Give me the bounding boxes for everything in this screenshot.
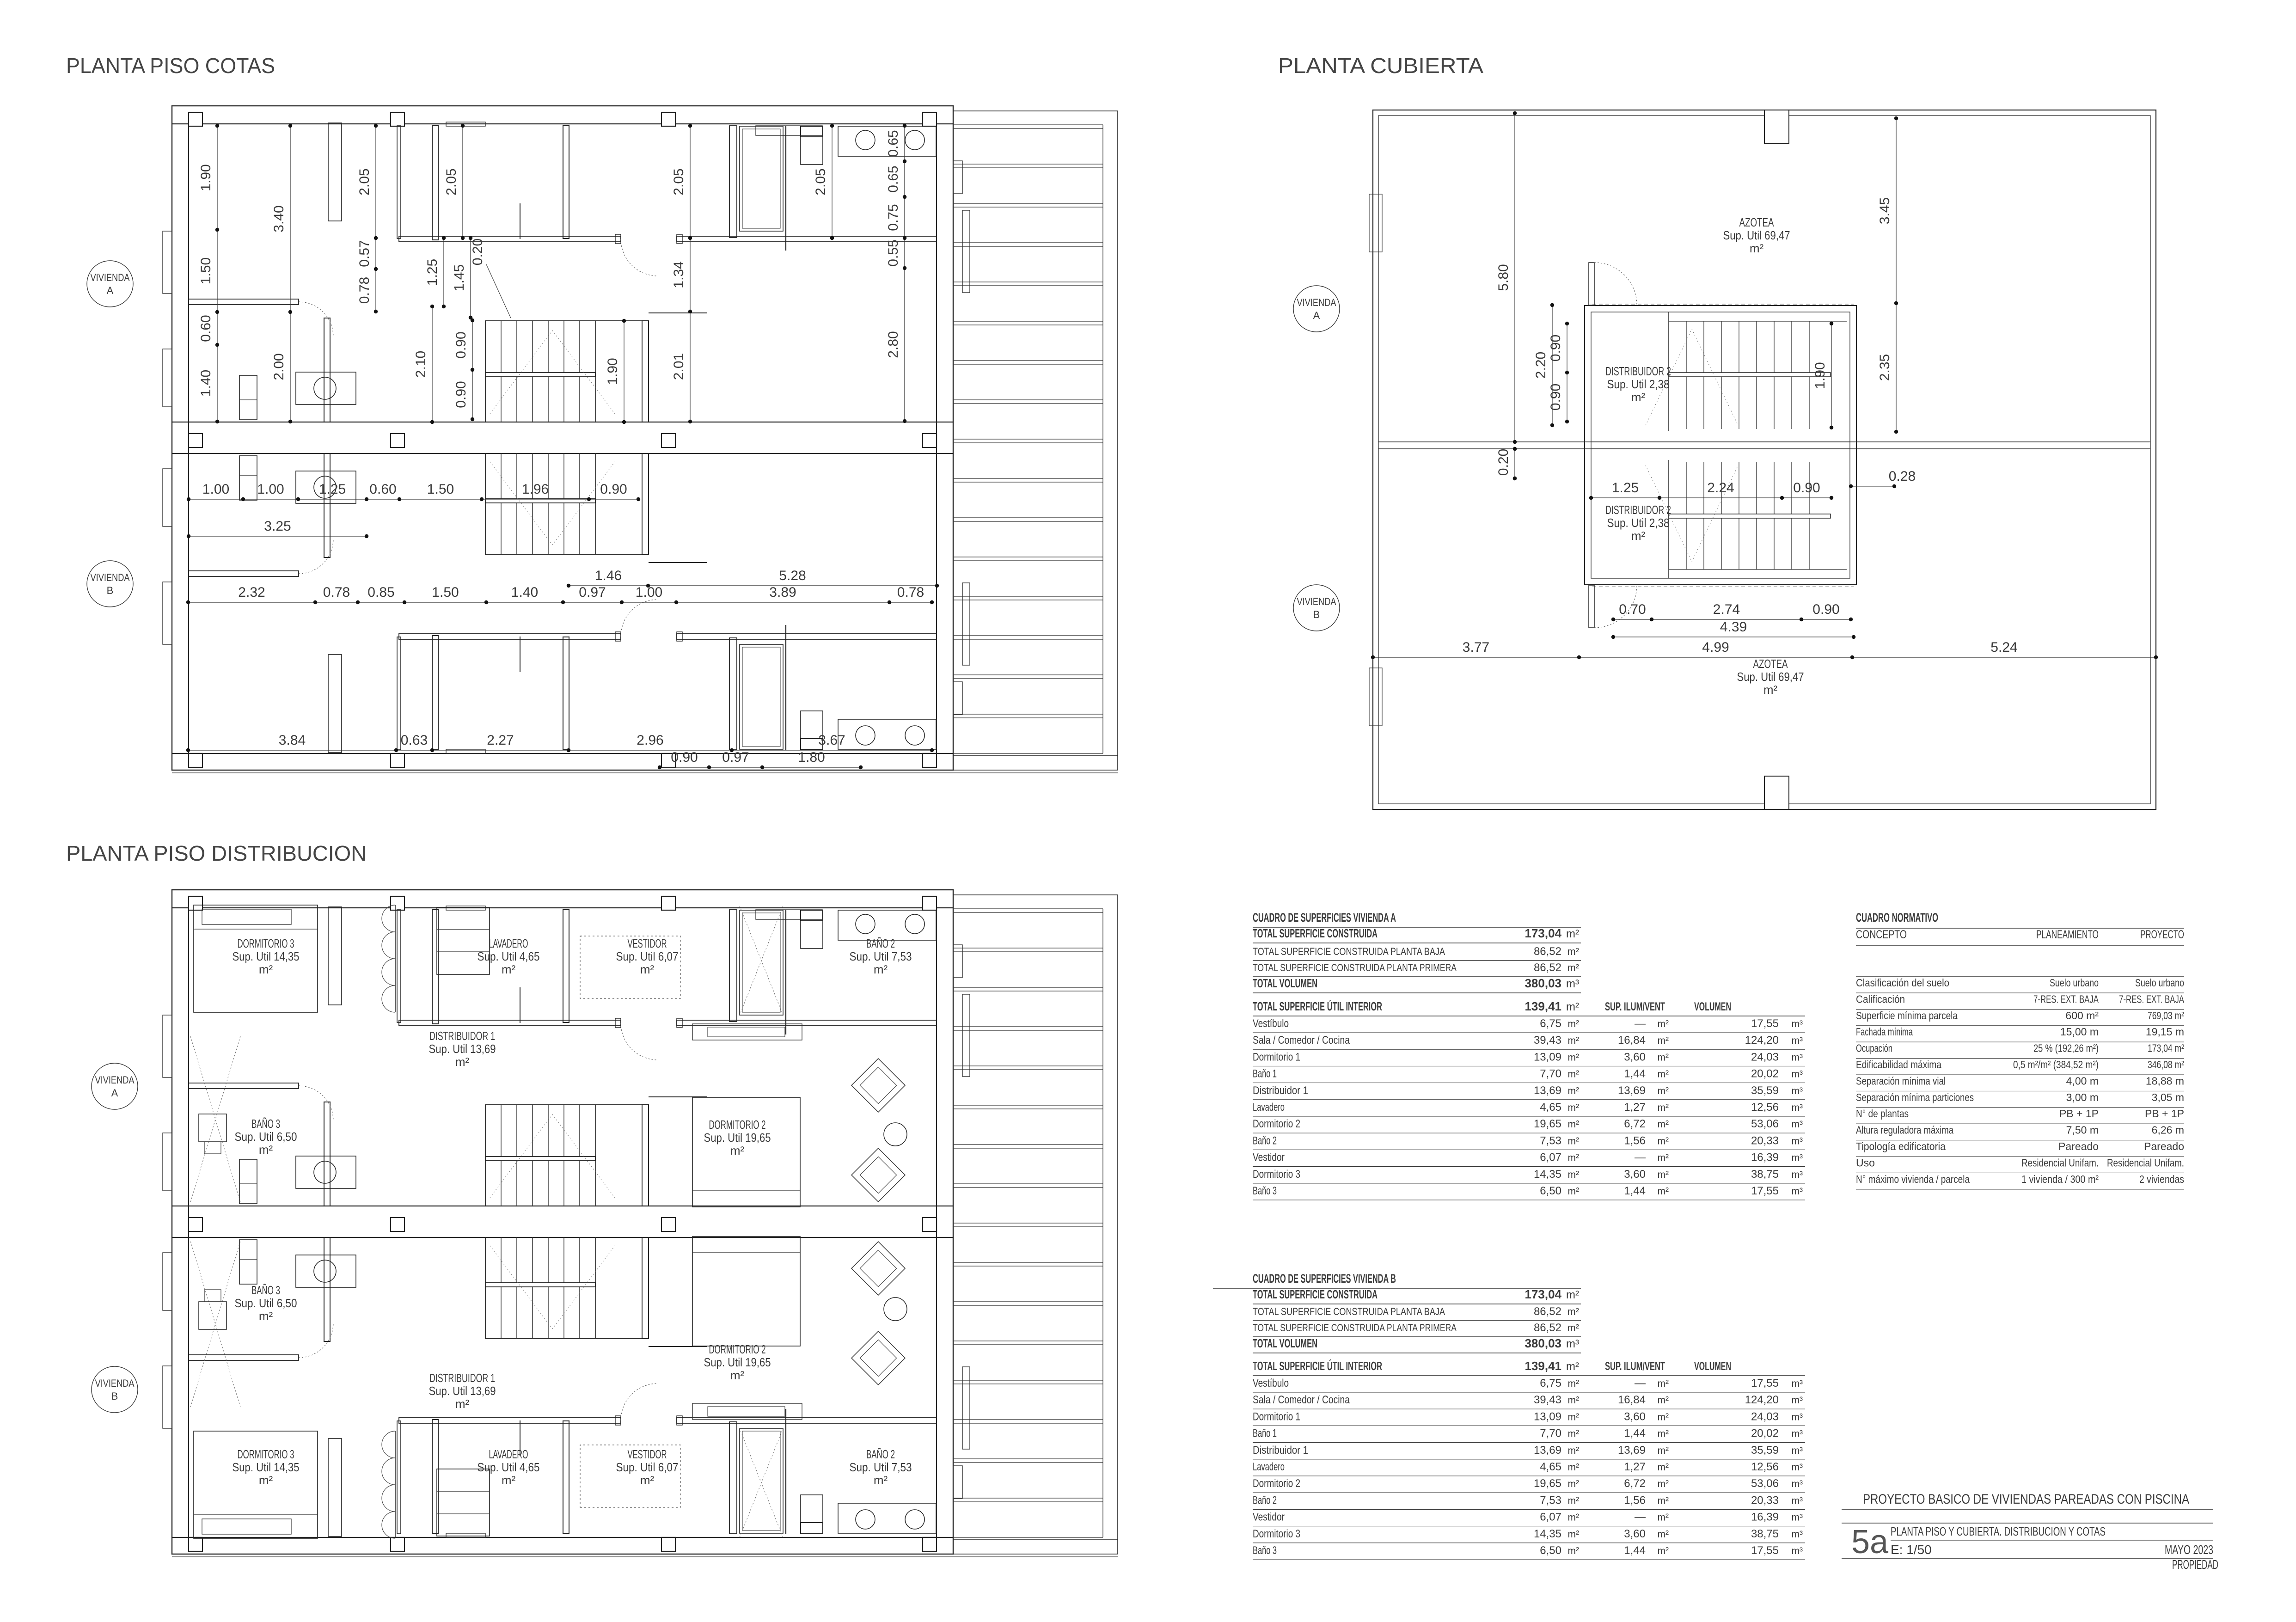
svg-text:3,60: 3,60 [1624, 1168, 1646, 1181]
svg-text:3,60: 3,60 [1624, 1051, 1646, 1063]
svg-text:1.96: 1.96 [522, 482, 549, 497]
svg-text:Residencial Unifam.: Residencial Unifam. [2021, 1157, 2099, 1169]
svg-text:4.99: 4.99 [1702, 640, 1729, 655]
svg-text:m³: m³ [1792, 1019, 1803, 1029]
svg-text:m²: m² [1658, 1479, 1669, 1489]
svg-text:6,50: 6,50 [1540, 1185, 1561, 1197]
svg-text:0,5 m²/m² (384,52 m²): 0,5 m²/m² (384,52 m²) [2013, 1059, 2099, 1071]
svg-text:Distribuidor 1: Distribuidor 1 [1253, 1444, 1308, 1457]
svg-text:TOTAL VOLUMEN: TOTAL VOLUMEN [1253, 1336, 1317, 1350]
svg-text:35,59: 35,59 [1751, 1084, 1779, 1097]
svg-text:Baño 1: Baño 1 [1253, 1068, 1277, 1080]
svg-text:86,52: 86,52 [1534, 945, 1561, 958]
svg-text:PLANTA PISO COTAS: PLANTA PISO COTAS [66, 54, 275, 78]
svg-text:TOTAL SUPERFICIE CONSTRUIDA: TOTAL SUPERFICIE CONSTRUIDA [1253, 1287, 1378, 1301]
svg-text:124,20: 124,20 [1745, 1394, 1779, 1406]
svg-text:0.78: 0.78 [323, 585, 350, 600]
svg-text:4,00 m: 4,00 m [2066, 1075, 2099, 1087]
svg-text:5.24: 5.24 [1990, 640, 2017, 655]
svg-text:m³: m³ [1566, 978, 1579, 990]
svg-text:13,69: 13,69 [1534, 1084, 1561, 1097]
svg-text:19,65: 19,65 [1534, 1118, 1561, 1130]
svg-text:m²: m² [1568, 1378, 1580, 1389]
svg-text:1.00: 1.00 [202, 482, 229, 497]
svg-text:2.05: 2.05 [444, 168, 459, 195]
svg-text:Sup. Util 2,38: Sup. Util 2,38 [1607, 377, 1670, 391]
svg-text:1.90: 1.90 [605, 358, 620, 385]
svg-text:Baño 2: Baño 2 [1253, 1494, 1277, 1506]
svg-text:17,55: 17,55 [1751, 1544, 1779, 1557]
svg-text:m²: m² [259, 1309, 273, 1323]
svg-text:PROYECTO: PROYECTO [2140, 928, 2184, 941]
svg-text:m²: m² [1568, 1169, 1580, 1180]
svg-text:m³: m³ [1792, 1479, 1803, 1489]
svg-text:AZOTEA: AZOTEA [1739, 215, 1774, 229]
svg-text:N° máximo vivienda / parcela: N° máximo vivienda / parcela [1856, 1173, 1970, 1185]
svg-text:3.25: 3.25 [264, 519, 291, 534]
svg-text:Vestidor: Vestidor [1253, 1151, 1285, 1164]
svg-text:2.96: 2.96 [637, 733, 663, 748]
svg-text:m²: m² [502, 962, 516, 976]
svg-text:5a: 5a [1851, 1524, 1889, 1561]
svg-text:m²: m² [259, 1473, 273, 1487]
svg-text:m³: m³ [1792, 1102, 1803, 1113]
svg-text:m²: m² [1658, 1378, 1669, 1389]
svg-text:PROPIEDAD: PROPIEDAD [2172, 1557, 2218, 1572]
svg-text:BAÑO 3: BAÑO 3 [251, 1283, 280, 1297]
svg-text:m²: m² [1566, 1289, 1579, 1301]
svg-text:TOTAL SUPERFICIE ÚTIL INTERIOR: TOTAL SUPERFICIE ÚTIL INTERIOR [1253, 999, 1382, 1013]
svg-text:16,84: 16,84 [1618, 1394, 1646, 1406]
svg-text:86,52: 86,52 [1534, 1322, 1561, 1334]
svg-text:0.63: 0.63 [401, 733, 428, 748]
svg-text:Pareado: Pareado [2144, 1140, 2184, 1152]
svg-text:53,06: 53,06 [1751, 1118, 1779, 1130]
svg-text:DORMITORIO 3: DORMITORIO 3 [238, 936, 294, 950]
svg-text:2.35: 2.35 [1877, 354, 1892, 381]
svg-text:TOTAL SUPERFICIE CONSTRUIDA PL: TOTAL SUPERFICIE CONSTRUIDA PLANTA PRIME… [1253, 962, 1457, 973]
svg-text:m³: m³ [1792, 1186, 1803, 1197]
svg-text:Sala / Comedor / Cocina: Sala / Comedor / Cocina [1253, 1034, 1350, 1047]
svg-text:Tipología edificatoria: Tipología edificatoria [1856, 1140, 1946, 1152]
svg-text:m²: m² [1566, 1001, 1579, 1013]
svg-text:Separación mínima vial: Separación mínima vial [1856, 1075, 1946, 1087]
svg-text:Pareado: Pareado [2058, 1140, 2099, 1152]
svg-text:35,59: 35,59 [1751, 1444, 1779, 1457]
svg-text:—: — [1635, 1511, 1646, 1524]
svg-text:m²: m² [1568, 1153, 1580, 1163]
svg-text:Sup. Util 19,65: Sup. Util 19,65 [704, 1355, 771, 1369]
svg-text:m²: m² [1658, 1429, 1669, 1439]
svg-text:m³: m³ [1792, 1546, 1803, 1556]
svg-text:7,70: 7,70 [1540, 1427, 1561, 1440]
svg-text:380,03: 380,03 [1525, 1336, 1561, 1350]
svg-text:m²: m² [259, 962, 273, 976]
svg-text:Sup. Util 69,47: Sup. Util 69,47 [1723, 228, 1790, 242]
svg-text:N° de plantas: N° de plantas [1856, 1108, 1909, 1120]
svg-text:20,33: 20,33 [1751, 1494, 1779, 1506]
svg-text:0.65: 0.65 [886, 165, 901, 192]
svg-text:m²: m² [1568, 1052, 1580, 1063]
svg-text:86,52: 86,52 [1534, 1305, 1561, 1318]
svg-text:Baño 3: Baño 3 [1253, 1185, 1277, 1197]
svg-text:12,56: 12,56 [1751, 1101, 1779, 1114]
svg-text:m³: m³ [1792, 1035, 1803, 1046]
svg-text:3,60: 3,60 [1624, 1410, 1646, 1423]
svg-text:7,53: 7,53 [1540, 1494, 1561, 1506]
svg-text:m³: m³ [1792, 1052, 1803, 1063]
svg-text:Lavadero: Lavadero [1253, 1101, 1285, 1114]
svg-text:m²: m² [1568, 1019, 1580, 1029]
svg-text:VIVIENDA: VIVIENDA [91, 572, 130, 583]
svg-text:38,75: 38,75 [1751, 1528, 1779, 1540]
svg-text:3,60: 3,60 [1624, 1528, 1646, 1540]
svg-text:0.90: 0.90 [453, 381, 469, 408]
svg-text:PB + 1P: PB + 1P [2145, 1108, 2184, 1120]
svg-text:Vestidor: Vestidor [1253, 1511, 1285, 1524]
svg-text:6,26 m: 6,26 m [2152, 1124, 2184, 1136]
svg-text:—: — [1635, 1151, 1646, 1164]
svg-text:173,04: 173,04 [1525, 926, 1561, 940]
svg-text:DORMITORIO 2: DORMITORIO 2 [709, 1342, 766, 1356]
svg-text:600 m²: 600 m² [2065, 1010, 2099, 1022]
svg-text:1,44: 1,44 [1624, 1185, 1646, 1197]
svg-text:DORMITORIO 2: DORMITORIO 2 [709, 1118, 766, 1132]
svg-text:139,41: 139,41 [1525, 999, 1561, 1013]
svg-text:16,39: 16,39 [1751, 1151, 1779, 1164]
svg-text:A: A [107, 285, 114, 296]
svg-text:6,07: 6,07 [1540, 1511, 1561, 1524]
svg-text:m²: m² [1568, 1529, 1580, 1540]
svg-text:1,44: 1,44 [1624, 1068, 1646, 1080]
svg-text:19,65: 19,65 [1534, 1477, 1561, 1490]
svg-text:4.39: 4.39 [1720, 619, 1747, 635]
svg-text:3.84: 3.84 [279, 733, 306, 748]
svg-text:1.45: 1.45 [452, 264, 467, 291]
svg-text:1.90: 1.90 [1812, 362, 1828, 389]
svg-text:6,75: 6,75 [1540, 1017, 1561, 1030]
svg-text:BAÑO 3: BAÑO 3 [251, 1117, 280, 1131]
svg-text:A: A [111, 1087, 118, 1099]
svg-text:Sala / Comedor / Cocina: Sala / Comedor / Cocina [1253, 1394, 1350, 1406]
svg-text:Dormitorio 3: Dormitorio 3 [1253, 1168, 1300, 1181]
svg-text:0.20: 0.20 [470, 239, 485, 265]
svg-text:24,03: 24,03 [1751, 1051, 1779, 1063]
svg-text:Sup. Util 13,69: Sup. Util 13,69 [429, 1042, 496, 1056]
svg-text:m²: m² [1658, 1019, 1669, 1029]
svg-text:3.89: 3.89 [769, 585, 796, 600]
svg-text:0.78: 0.78 [897, 585, 924, 600]
svg-text:—: — [1635, 1377, 1646, 1389]
svg-text:m³: m³ [1792, 1412, 1803, 1422]
svg-text:VIVIENDA: VIVIENDA [1297, 297, 1336, 308]
svg-text:0.97: 0.97 [579, 585, 606, 600]
svg-text:B: B [107, 585, 114, 596]
svg-text:TOTAL SUPERFICIE CONSTRUIDA: TOTAL SUPERFICIE CONSTRUIDA [1253, 926, 1378, 940]
svg-text:Baño 3: Baño 3 [1253, 1544, 1277, 1557]
svg-text:139,41: 139,41 [1525, 1359, 1561, 1373]
svg-text:6,75: 6,75 [1540, 1377, 1561, 1389]
svg-text:m³: m³ [1792, 1462, 1803, 1473]
svg-text:0.90: 0.90 [671, 750, 698, 765]
svg-text:m³: m³ [1792, 1529, 1803, 1540]
svg-text:m²: m² [1658, 1102, 1669, 1113]
svg-text:0.55: 0.55 [886, 239, 901, 266]
svg-text:2.01: 2.01 [671, 353, 686, 380]
svg-text:0.90: 0.90 [1548, 335, 1563, 361]
svg-text:Fachada mínima: Fachada mínima [1856, 1026, 1913, 1038]
svg-text:TOTAL SUPERFICIE CONSTRUIDA PL: TOTAL SUPERFICIE CONSTRUIDA PLANTA PRIME… [1253, 1322, 1457, 1334]
svg-text:Dormitorio 3: Dormitorio 3 [1253, 1528, 1300, 1540]
svg-text:Sup. Util 6,50: Sup. Util 6,50 [235, 1296, 297, 1310]
svg-text:m²: m² [455, 1055, 470, 1069]
svg-text:m³: m³ [1792, 1429, 1803, 1439]
svg-text:m²: m² [1658, 1052, 1669, 1063]
svg-text:m²: m² [1568, 1395, 1580, 1406]
svg-text:2.24: 2.24 [1707, 480, 1734, 496]
svg-text:6,07: 6,07 [1540, 1151, 1561, 1164]
svg-text:13,09: 13,09 [1534, 1410, 1561, 1423]
svg-text:0.65: 0.65 [886, 130, 901, 157]
svg-text:VESTIDOR: VESTIDOR [628, 936, 667, 950]
svg-text:Dormitorio 2: Dormitorio 2 [1253, 1477, 1300, 1490]
svg-text:BAÑO 2: BAÑO 2 [866, 1447, 895, 1461]
svg-text:4,65: 4,65 [1540, 1461, 1561, 1473]
svg-text:DORMITORIO 3: DORMITORIO 3 [238, 1447, 294, 1461]
svg-text:1.25: 1.25 [319, 482, 346, 497]
svg-text:380,03: 380,03 [1525, 976, 1561, 990]
svg-text:m²: m² [1568, 1512, 1580, 1523]
svg-text:Sup. Util 14,35: Sup. Util 14,35 [233, 1460, 300, 1474]
svg-text:B: B [111, 1390, 118, 1402]
svg-text:3,00 m: 3,00 m [2066, 1091, 2099, 1103]
svg-text:m³: m³ [1792, 1445, 1803, 1456]
svg-text:m²: m² [1568, 1069, 1580, 1080]
svg-text:Distribuidor 1: Distribuidor 1 [1253, 1084, 1308, 1097]
svg-text:Sup. Util 7,53: Sup. Util 7,53 [850, 1460, 912, 1474]
svg-text:6,72: 6,72 [1624, 1477, 1646, 1490]
svg-text:Baño 2: Baño 2 [1253, 1134, 1277, 1147]
svg-text:VIVIENDA: VIVIENDA [95, 1377, 135, 1389]
svg-text:Sup. Util 69,47: Sup. Util 69,47 [1737, 670, 1804, 684]
svg-text:Sup. Util 6,07: Sup. Util 6,07 [616, 1460, 679, 1474]
svg-text:14,35: 14,35 [1534, 1528, 1561, 1540]
svg-text:m²: m² [1631, 529, 1646, 543]
svg-text:Dormitorio 1: Dormitorio 1 [1253, 1410, 1300, 1423]
svg-text:Clasificación del suelo: Clasificación del suelo [1856, 977, 1949, 989]
svg-text:Lavadero: Lavadero [1253, 1461, 1285, 1473]
svg-text:Sup. Util 6,50: Sup. Util 6,50 [235, 1130, 297, 1144]
svg-text:2.32: 2.32 [238, 585, 265, 600]
svg-text:3.45: 3.45 [1877, 197, 1892, 224]
svg-text:Sup. Util 14,35: Sup. Util 14,35 [233, 949, 300, 963]
svg-text:16,84: 16,84 [1618, 1034, 1646, 1047]
svg-text:m²: m² [1658, 1035, 1669, 1046]
svg-text:CUADRO DE SUPERFICIES VIVIENDA: CUADRO DE SUPERFICIES VIVIENDA A [1253, 911, 1396, 924]
svg-text:3.67: 3.67 [818, 733, 845, 748]
svg-text:m²: m² [502, 1473, 516, 1487]
svg-text:24,03: 24,03 [1751, 1410, 1779, 1423]
svg-text:7-RES. EXT. BAJA: 7-RES. EXT. BAJA [2033, 993, 2099, 1005]
svg-text:0.60: 0.60 [369, 482, 396, 497]
svg-text:m²: m² [1658, 1529, 1669, 1540]
svg-text:m²: m² [1566, 1360, 1579, 1373]
svg-text:13,69: 13,69 [1618, 1084, 1646, 1097]
svg-text:Sup. Util 2,38: Sup. Util 2,38 [1607, 516, 1670, 530]
svg-text:2 viviendas: 2 viviendas [2139, 1173, 2184, 1185]
svg-text:1.34: 1.34 [671, 261, 686, 288]
svg-text:2.20: 2.20 [1533, 352, 1549, 379]
svg-text:A: A [1313, 310, 1320, 321]
svg-text:1 vivienda / 300 m²: 1 vivienda / 300 m² [2021, 1173, 2099, 1185]
svg-text:m²: m² [1568, 1186, 1580, 1197]
svg-text:SUP. ILUM/VENT: SUP. ILUM/VENT [1605, 1360, 1665, 1373]
svg-text:VIVIENDA: VIVIENDA [95, 1074, 135, 1086]
svg-text:1.50: 1.50 [432, 585, 459, 600]
svg-text:Sup. Util 13,69: Sup. Util 13,69 [429, 1384, 496, 1398]
svg-text:13,09: 13,09 [1534, 1051, 1561, 1063]
svg-text:Uso: Uso [1856, 1157, 1875, 1169]
svg-text:SUP. ILUM/VENT: SUP. ILUM/VENT [1605, 1000, 1665, 1013]
svg-text:2.00: 2.00 [271, 353, 287, 380]
svg-text:m²: m² [259, 1143, 273, 1157]
svg-text:m²: m² [1568, 1495, 1580, 1506]
svg-text:19,15 m: 19,15 m [2146, 1026, 2184, 1038]
svg-text:m²: m² [1568, 1479, 1580, 1489]
svg-text:BAÑO 2: BAÑO 2 [866, 936, 895, 950]
svg-text:2.05: 2.05 [671, 168, 686, 195]
svg-text:TOTAL VOLUMEN: TOTAL VOLUMEN [1253, 976, 1317, 990]
svg-text:m²: m² [874, 1473, 888, 1487]
svg-text:m³: m³ [1792, 1136, 1803, 1146]
svg-text:12,56: 12,56 [1751, 1461, 1779, 1473]
svg-text:LAVADERO: LAVADERO [489, 936, 528, 950]
svg-text:m²: m² [1568, 1086, 1580, 1096]
svg-text:0.97: 0.97 [722, 750, 749, 765]
svg-text:7,70: 7,70 [1540, 1068, 1561, 1080]
svg-text:DISTRIBUIDOR 1: DISTRIBUIDOR 1 [429, 1029, 495, 1043]
svg-text:m²: m² [1658, 1153, 1669, 1163]
svg-text:CUADRO DE SUPERFICIES VIVIENDA: CUADRO DE SUPERFICIES VIVIENDA B [1253, 1272, 1396, 1285]
svg-text:m²: m² [455, 1397, 470, 1411]
svg-text:16,39: 16,39 [1751, 1511, 1779, 1524]
svg-text:m²: m² [1568, 1136, 1580, 1146]
svg-text:1,44: 1,44 [1624, 1544, 1646, 1557]
svg-text:1.25: 1.25 [425, 259, 440, 286]
svg-text:0.85: 0.85 [367, 585, 394, 600]
svg-text:Sup. Util 19,65: Sup. Util 19,65 [704, 1131, 771, 1145]
svg-text:1,56: 1,56 [1624, 1134, 1646, 1147]
svg-text:5.80: 5.80 [1496, 264, 1511, 291]
svg-text:39,43: 39,43 [1534, 1394, 1561, 1406]
svg-text:1.90: 1.90 [198, 164, 214, 191]
svg-text:m²: m² [1658, 1186, 1669, 1197]
svg-text:DISTRIBUIDOR 1: DISTRIBUIDOR 1 [429, 1371, 495, 1385]
svg-text:CONCEPTO: CONCEPTO [1856, 928, 1907, 941]
svg-text:DISTRIBUIDOR 2: DISTRIBUIDOR 2 [1605, 364, 1671, 378]
svg-text:TOTAL SUPERFICIE CONSTRUIDA PL: TOTAL SUPERFICIE CONSTRUIDA PLANTA BAJA [1253, 946, 1445, 957]
svg-text:CUADRO NORMATIVO: CUADRO NORMATIVO [1856, 911, 1938, 924]
svg-text:0.90: 0.90 [600, 482, 627, 497]
svg-text:5.28: 5.28 [779, 568, 806, 583]
svg-text:m²: m² [1750, 241, 1764, 255]
svg-text:1,56: 1,56 [1624, 1494, 1646, 1506]
svg-text:13,69: 13,69 [1534, 1444, 1561, 1457]
svg-text:PROYECTO BASICO DE VIVIENDAS P: PROYECTO BASICO DE VIVIENDAS PAREADAS CO… [1863, 1492, 2189, 1507]
svg-text:124,20: 124,20 [1745, 1034, 1779, 1047]
svg-text:0.28: 0.28 [1889, 469, 1916, 484]
svg-text:0.90: 0.90 [453, 331, 469, 358]
svg-text:VOLUMEN: VOLUMEN [1694, 1360, 1731, 1373]
svg-text:2.74: 2.74 [1713, 602, 1740, 617]
svg-text:Separación mínima particiones: Separación mínima particiones [1856, 1091, 1974, 1103]
svg-text:m²: m² [1658, 1445, 1669, 1456]
svg-text:2.05: 2.05 [357, 168, 372, 195]
svg-text:m²: m² [1658, 1069, 1669, 1080]
svg-text:m²: m² [1658, 1119, 1669, 1130]
svg-text:m²: m² [1568, 1035, 1580, 1046]
svg-text:m²: m² [640, 1473, 655, 1487]
svg-text:1.25: 1.25 [1612, 480, 1639, 496]
svg-text:m²: m² [1566, 928, 1579, 940]
svg-text:Edificabilidad máxima: Edificabilidad máxima [1856, 1059, 1941, 1071]
svg-text:Sup. Util 7,53: Sup. Util 7,53 [850, 949, 912, 963]
svg-text:m²: m² [1658, 1462, 1669, 1473]
svg-text:Dormitorio 1: Dormitorio 1 [1253, 1051, 1300, 1063]
svg-text:1.80: 1.80 [798, 750, 825, 765]
svg-text:m²: m² [1568, 1546, 1580, 1556]
svg-text:m³: m³ [1792, 1069, 1803, 1080]
svg-text:0.75: 0.75 [886, 204, 901, 231]
svg-text:2.80: 2.80 [886, 331, 901, 358]
svg-text:B: B [1313, 609, 1320, 620]
svg-text:Sup. Util 4,65: Sup. Util 4,65 [478, 1460, 540, 1474]
svg-text:13,69: 13,69 [1618, 1444, 1646, 1457]
svg-text:20,02: 20,02 [1751, 1068, 1779, 1080]
svg-text:TOTAL SUPERFICIE CONSTRUIDA PL: TOTAL SUPERFICIE CONSTRUIDA PLANTA BAJA [1253, 1306, 1445, 1317]
svg-text:14,35: 14,35 [1534, 1168, 1561, 1181]
svg-text:m²: m² [640, 962, 655, 976]
svg-text:1.40: 1.40 [198, 370, 214, 397]
svg-text:PLANTA CUBIERTA: PLANTA CUBIERTA [1278, 54, 1483, 78]
svg-text:1.50: 1.50 [427, 482, 454, 497]
svg-text:3,05 m: 3,05 m [2152, 1091, 2184, 1103]
svg-text:m²: m² [1567, 946, 1579, 957]
svg-text:0.78: 0.78 [357, 277, 372, 304]
svg-text:Residencial Unifam.: Residencial Unifam. [2107, 1157, 2184, 1169]
svg-text:25 % (192,26 m²): 25 % (192,26 m²) [2033, 1042, 2099, 1054]
svg-text:m²: m² [1658, 1086, 1669, 1096]
svg-text:2.27: 2.27 [487, 733, 514, 748]
svg-text:m²: m² [1568, 1102, 1580, 1113]
svg-text:Altura reguladora máxima: Altura reguladora máxima [1856, 1124, 1953, 1136]
svg-text:1.46: 1.46 [595, 568, 622, 583]
svg-text:DISTRIBUIDOR 2: DISTRIBUIDOR 2 [1605, 503, 1671, 517]
svg-text:0.70: 0.70 [1619, 602, 1646, 617]
svg-text:Suelo urbano: Suelo urbano [2135, 977, 2184, 989]
svg-text:m²: m² [1763, 683, 1778, 697]
svg-text:39,43: 39,43 [1534, 1034, 1561, 1047]
svg-text:PLANEAMIENTO: PLANEAMIENTO [2036, 928, 2099, 941]
svg-text:m²: m² [1631, 390, 1646, 404]
svg-text:173,04 m²: 173,04 m² [2148, 1042, 2184, 1054]
svg-text:769,03 m²: 769,03 m² [2148, 1010, 2184, 1022]
svg-text:1.50: 1.50 [198, 257, 214, 284]
svg-text:TOTAL SUPERFICIE ÚTIL INTERIOR: TOTAL SUPERFICIE ÚTIL INTERIOR [1253, 1359, 1382, 1373]
svg-text:PLANTA PISO DISTRIBUCION: PLANTA PISO DISTRIBUCION [66, 841, 367, 865]
svg-text:0.57: 0.57 [357, 240, 372, 267]
svg-text:6,50: 6,50 [1540, 1544, 1561, 1557]
